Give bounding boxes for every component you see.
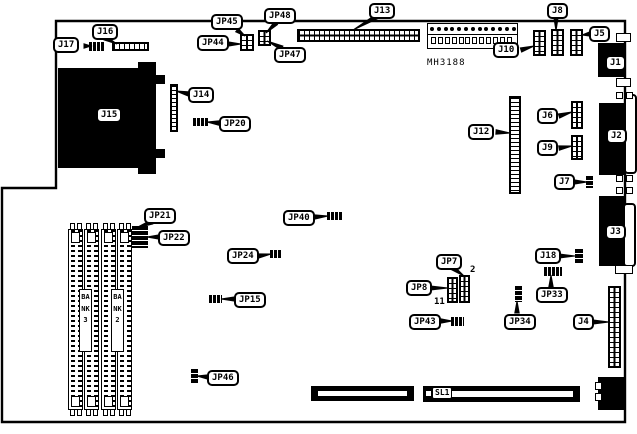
callout-jp44: JP44 [197, 35, 229, 51]
pointer-line [221, 297, 235, 301]
callout-j8: J8 [547, 3, 568, 19]
callout-j17: J17 [53, 37, 79, 53]
callout-j4: J4 [573, 314, 594, 330]
callout-jp21: JP21 [144, 208, 176, 224]
callout-j3: J3 [605, 224, 626, 240]
callout-j7: J7 [554, 174, 575, 190]
pointer-line [549, 275, 553, 287]
callout-j12: J12 [468, 124, 494, 140]
pointer-line [228, 42, 241, 46]
callout-jp22: JP22 [158, 230, 190, 246]
pointer-layer [0, 0, 637, 434]
callout-j14: J14 [188, 87, 214, 103]
callout-jp15: JP15 [234, 292, 266, 308]
pointer-line [515, 301, 519, 313]
callout-j5: J5 [589, 26, 610, 42]
pointer-line [441, 319, 452, 323]
callout-jp46: JP46 [207, 370, 239, 386]
callout-j18: J18 [535, 248, 561, 264]
callout-j6: J6 [537, 108, 558, 124]
pointer-line [84, 44, 91, 48]
callout-j15: J15 [96, 107, 122, 123]
pointer-line [592, 320, 609, 324]
callout-jp20: JP20 [219, 116, 251, 132]
motherboard-diagram: BANK3 BANK2 MH3188 2 11 J17J16JP45JP48JP… [0, 0, 637, 434]
callout-jp47: JP47 [274, 47, 306, 63]
callout-jp34: JP34 [504, 314, 536, 330]
pointer-line [574, 180, 587, 184]
callout-jp33: JP33 [536, 287, 568, 303]
callout-jp8: JP8 [406, 280, 432, 296]
callout-j2: J2 [606, 128, 627, 144]
callout-jp45: JP45 [211, 14, 243, 30]
callout-j10: J10 [493, 42, 519, 58]
callout-jp43: JP43 [409, 314, 441, 330]
pointer-line [520, 46, 534, 52]
callout-jp40: JP40 [283, 210, 315, 226]
callout-j1: J1 [605, 55, 626, 71]
callout-jp7: JP7 [436, 254, 462, 270]
pointer-line [559, 146, 572, 150]
pointer-line [314, 215, 328, 219]
callout-jp48: JP48 [264, 8, 296, 24]
pointer-line [554, 17, 558, 31]
callout-j13: J13 [369, 3, 395, 19]
callout-j16: J16 [92, 24, 118, 40]
pointer-line [258, 254, 271, 258]
pointer-line [496, 130, 510, 134]
callout-j9: J9 [537, 140, 558, 156]
pointer-line [558, 112, 572, 118]
callout-sl1: SL1 [432, 387, 452, 399]
callout-jp24: JP24 [227, 248, 259, 264]
pointer-line [207, 121, 219, 125]
